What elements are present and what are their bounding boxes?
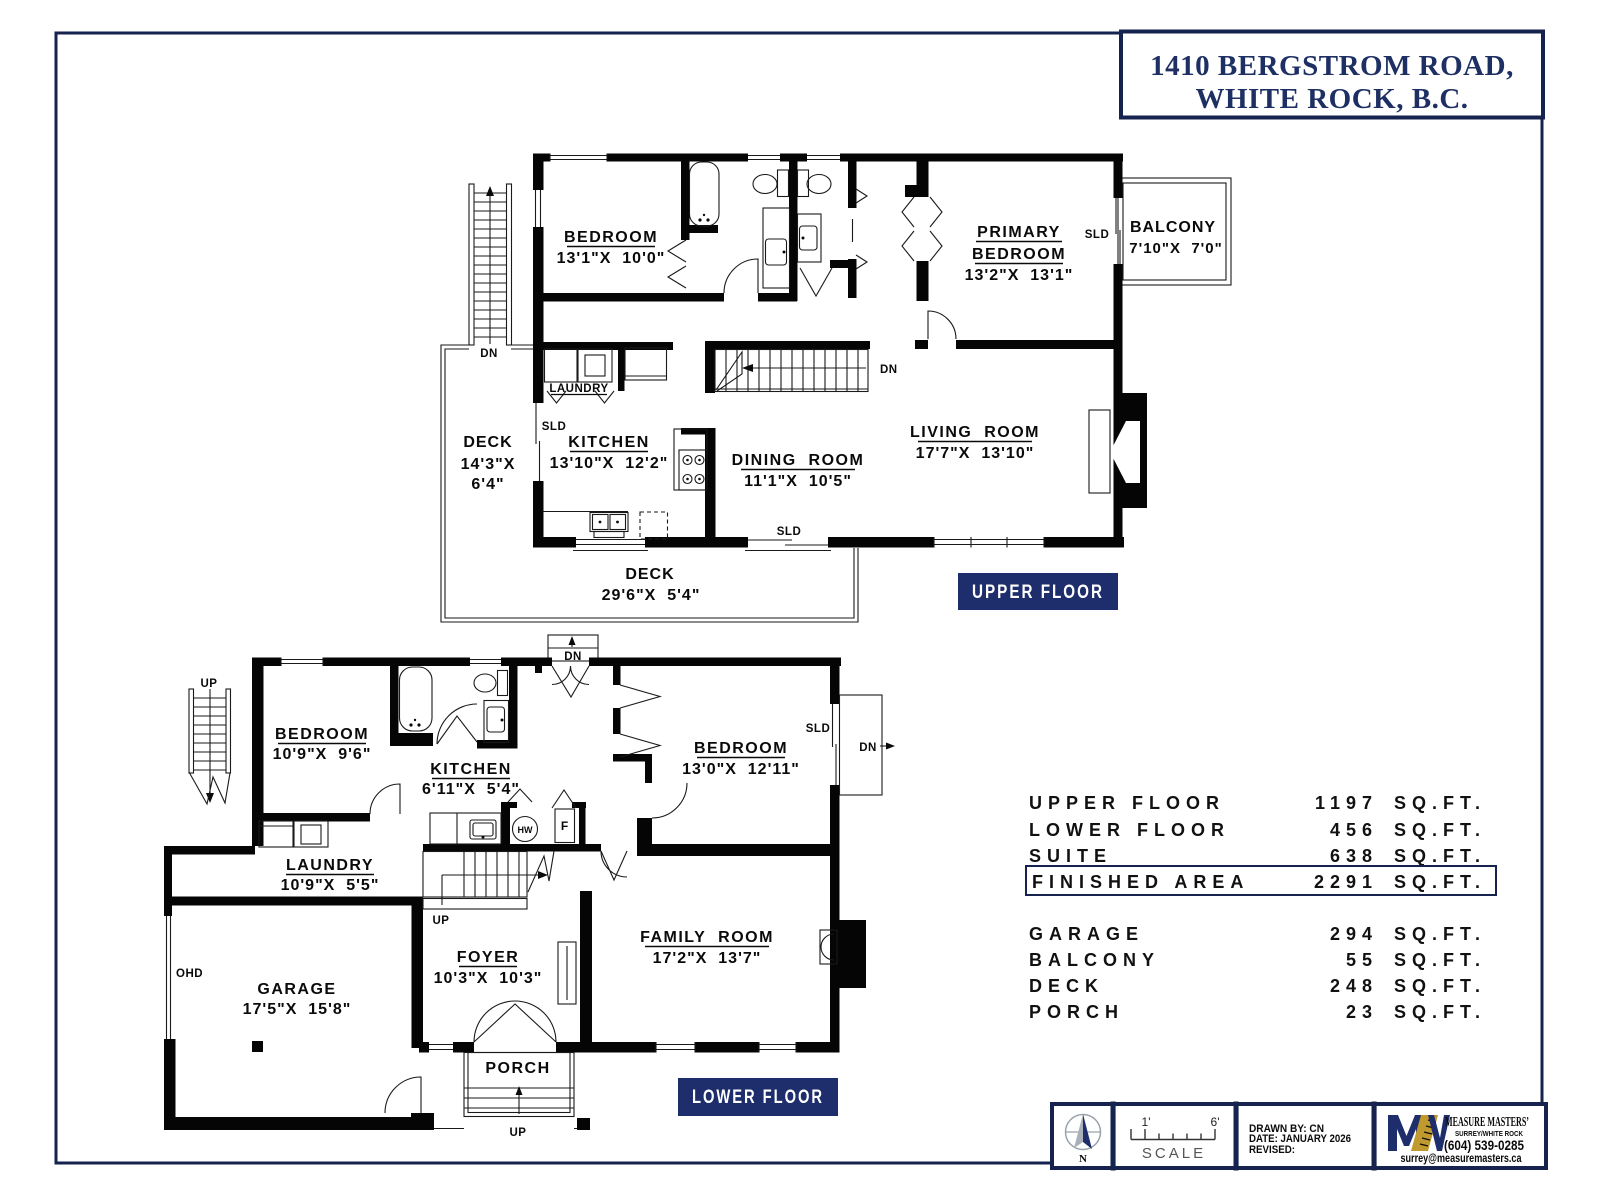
svg-text:SUITE: SUITE xyxy=(1029,846,1112,866)
svg-text:SQ.FT.: SQ.FT. xyxy=(1394,846,1486,866)
svg-text:GARAGE: GARAGE xyxy=(1029,924,1144,944)
svg-text:13'2"X 13'1": 13'2"X 13'1" xyxy=(965,267,1074,284)
svg-text:UP: UP xyxy=(510,1127,527,1139)
svg-text:PORCH: PORCH xyxy=(1029,1002,1124,1022)
svg-text:GARAGE: GARAGE xyxy=(257,981,336,998)
svg-text:DECK: DECK xyxy=(1029,976,1104,996)
svg-text:LOWER FLOOR: LOWER FLOOR xyxy=(692,1087,824,1108)
svg-text:FINISHED AREA: FINISHED AREA xyxy=(1032,872,1249,892)
svg-text:SQ.FT.: SQ.FT. xyxy=(1394,976,1486,996)
svg-text:17'5"X 15'8": 17'5"X 15'8" xyxy=(243,1001,352,1018)
svg-text:55: 55 xyxy=(1346,950,1378,970)
svg-text:SQ.FT.: SQ.FT. xyxy=(1394,872,1486,892)
svg-text:2291: 2291 xyxy=(1314,872,1378,892)
svg-text:10'9"X 5'5": 10'9"X 5'5" xyxy=(281,877,380,894)
svg-text:(604) 539-0285: (604) 539-0285 xyxy=(1444,1137,1524,1153)
svg-text:456: 456 xyxy=(1330,820,1378,840)
svg-text:BEDROOM: BEDROOM xyxy=(275,726,369,743)
svg-text:294: 294 xyxy=(1330,924,1378,944)
svg-text:LAUNDRY: LAUNDRY xyxy=(286,857,374,874)
svg-text:DN: DN xyxy=(859,742,877,754)
svg-text:13'10"X 12'2": 13'10"X 12'2" xyxy=(550,455,669,472)
svg-text:LIVING ROOM: LIVING ROOM xyxy=(910,424,1040,441)
svg-text:SQ.FT.: SQ.FT. xyxy=(1394,924,1486,944)
svg-text:BEDROOM: BEDROOM xyxy=(694,740,788,757)
svg-text:17'7"X 13'10": 17'7"X 13'10" xyxy=(916,445,1035,462)
svg-text:29'6"X 5'4": 29'6"X 5'4" xyxy=(602,587,701,604)
svg-text:SLD: SLD xyxy=(806,723,831,735)
svg-text:1410 BERGSTROM ROAD,: 1410 BERGSTROM ROAD, xyxy=(1150,50,1514,82)
svg-text:UPPER FLOOR: UPPER FLOOR xyxy=(972,582,1104,603)
svg-text:SQ.FT.: SQ.FT. xyxy=(1394,950,1486,970)
svg-text:13'0"X 12'11": 13'0"X 12'11" xyxy=(682,761,800,778)
svg-text:BALCONY: BALCONY xyxy=(1029,950,1160,970)
svg-text:23: 23 xyxy=(1346,1002,1378,1022)
svg-text:BEDROOM: BEDROOM xyxy=(972,246,1066,263)
svg-text:DINING ROOM: DINING ROOM xyxy=(732,452,865,469)
svg-text:SLD: SLD xyxy=(777,526,802,538)
svg-text:1': 1' xyxy=(1142,1115,1151,1129)
svg-text:6': 6' xyxy=(1211,1115,1220,1129)
svg-text:UPPER FLOOR: UPPER FLOOR xyxy=(1029,793,1225,813)
svg-text:N: N xyxy=(1079,1153,1087,1165)
svg-text:SLD: SLD xyxy=(542,421,567,433)
svg-text:7'10"X 7'0": 7'10"X 7'0" xyxy=(1129,240,1222,257)
svg-text:LAUNDRY: LAUNDRY xyxy=(549,383,608,395)
svg-text:FAMILY ROOM: FAMILY ROOM xyxy=(640,929,774,946)
svg-text:11'1"X 10'5": 11'1"X 10'5" xyxy=(744,473,852,490)
svg-text:UP: UP xyxy=(433,915,450,927)
svg-text:REVISED:: REVISED: xyxy=(1249,1144,1295,1156)
svg-text:MEASURE MASTERS’: MEASURE MASTERS’ xyxy=(1445,1115,1529,1130)
svg-text:HW: HW xyxy=(518,825,533,835)
svg-text:KITCHEN: KITCHEN xyxy=(568,434,650,451)
svg-text:SQ.FT.: SQ.FT. xyxy=(1394,1002,1486,1022)
svg-text:638: 638 xyxy=(1330,846,1378,866)
svg-text:248: 248 xyxy=(1330,976,1378,996)
svg-text:OHD: OHD xyxy=(176,968,203,980)
svg-text:10'3"X 10'3": 10'3"X 10'3" xyxy=(434,970,543,987)
svg-text:PRIMARY: PRIMARY xyxy=(977,224,1061,241)
svg-text:DECK: DECK xyxy=(463,434,512,451)
svg-text:DN: DN xyxy=(564,651,582,663)
svg-text:BALCONY: BALCONY xyxy=(1130,219,1216,236)
svg-text:1197: 1197 xyxy=(1315,793,1378,813)
svg-text:DECK: DECK xyxy=(625,566,674,583)
svg-text:14'3"X: 14'3"X xyxy=(461,456,516,473)
svg-text:SQ.FT.: SQ.FT. xyxy=(1394,793,1486,813)
svg-text:SQ.FT.: SQ.FT. xyxy=(1394,820,1486,840)
svg-text:SLD: SLD xyxy=(1085,229,1110,241)
svg-text:DN: DN xyxy=(480,348,498,360)
svg-text:F: F xyxy=(561,819,568,833)
svg-text:DN: DN xyxy=(880,364,898,376)
svg-text:PORCH: PORCH xyxy=(485,1060,550,1077)
svg-text:WHITE ROCK, B.C.: WHITE ROCK, B.C. xyxy=(1195,83,1468,115)
svg-text:surrey@measuremasters.ca: surrey@measuremasters.ca xyxy=(1401,1153,1522,1165)
svg-text:17'2"X 13'7": 17'2"X 13'7" xyxy=(653,950,762,967)
svg-text:6'4": 6'4" xyxy=(471,476,504,493)
svg-text:SCALE: SCALE xyxy=(1142,1145,1206,1162)
svg-text:LOWER FLOOR: LOWER FLOOR xyxy=(1029,820,1230,840)
svg-text:10'9"X 9'6": 10'9"X 9'6" xyxy=(273,746,372,763)
svg-text:KITCHEN: KITCHEN xyxy=(430,761,512,778)
svg-text:FOYER: FOYER xyxy=(457,949,520,966)
svg-text:UP: UP xyxy=(201,678,218,690)
svg-text:6'11"X 5'4": 6'11"X 5'4" xyxy=(422,781,520,798)
svg-text:13'1"X 10'0": 13'1"X 10'0" xyxy=(557,250,666,267)
svg-text:BEDROOM: BEDROOM xyxy=(564,229,658,246)
